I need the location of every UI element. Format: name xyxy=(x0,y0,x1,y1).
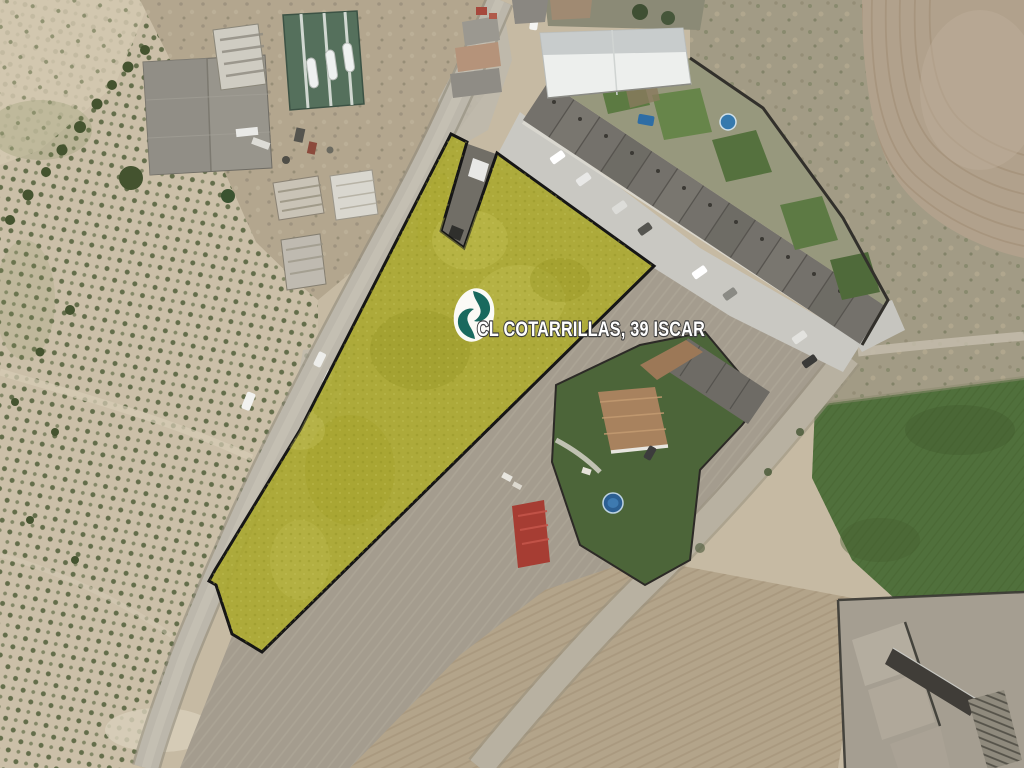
metal-shed xyxy=(213,24,266,90)
address-label: CL COTARRILLAS, 39 ISCAR xyxy=(477,317,705,341)
green-barn xyxy=(283,11,364,110)
satellite-map: CL COTARRILLAS, 39 ISCAR xyxy=(0,0,1024,768)
property-satellite-image: CL COTARRILLAS, 39 ISCAR xyxy=(0,0,1024,768)
red-shed-roof xyxy=(512,500,550,568)
corner-compound xyxy=(838,592,1024,768)
round-pool xyxy=(720,114,736,130)
